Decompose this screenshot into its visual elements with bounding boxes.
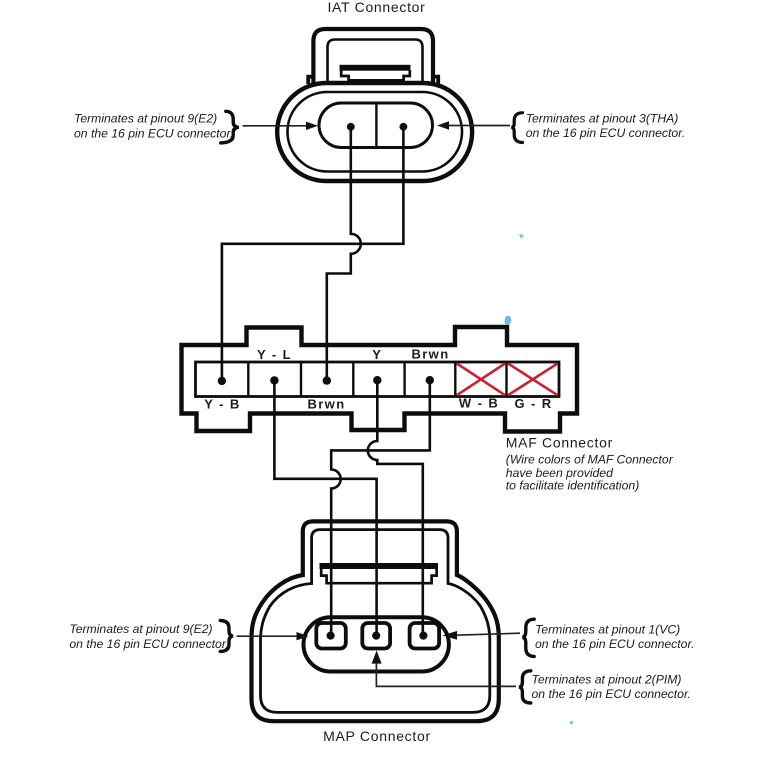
svg-text:Y - L: Y - L — [257, 347, 292, 362]
svg-text:Terminates at pinout 3(THA): Terminates at pinout 3(THA) — [526, 111, 679, 125]
svg-text:IAT Connector: IAT Connector — [327, 0, 425, 15]
svg-text:Terminates at pinout 2(PIM): Terminates at pinout 2(PIM) — [532, 673, 682, 687]
svg-text:to facilitate identification): to facilitate identification) — [506, 479, 639, 493]
svg-text:on the 16 pin ECU connector.: on the 16 pin ECU connector. — [526, 126, 685, 140]
svg-text:Y: Y — [372, 347, 382, 362]
svg-text:Terminates at pinout 9(E2): Terminates at pinout 9(E2) — [74, 111, 217, 125]
svg-text:Y - B: Y - B — [204, 397, 240, 412]
svg-text:Terminates at pinout 9(E2): Terminates at pinout 9(E2) — [69, 622, 212, 636]
svg-text:MAF Connector: MAF Connector — [506, 435, 613, 451]
svg-text:Brwn: Brwn — [411, 347, 449, 362]
svg-text:on the 16 pin ECU connector.: on the 16 pin ECU connector. — [69, 637, 228, 651]
svg-text:on the 16 pin ECU connector.: on the 16 pin ECU connector. — [532, 687, 691, 701]
svg-text:Terminates at pinout 1(VC): Terminates at pinout 1(VC) — [535, 623, 680, 637]
svg-text:W - B: W - B — [459, 396, 499, 411]
svg-text:on the 16 pin ECU connector.: on the 16 pin ECU connector. — [535, 637, 694, 651]
svg-text:(Wire colors of MAF Connector: (Wire colors of MAF Connector — [506, 453, 674, 467]
svg-text:MAP Connector: MAP Connector — [323, 728, 431, 744]
svg-text:on the 16 pin ECU connector.: on the 16 pin ECU connector. — [74, 126, 233, 140]
svg-text:G - R: G - R — [514, 396, 552, 411]
svg-text:Brwn: Brwn — [307, 397, 345, 412]
